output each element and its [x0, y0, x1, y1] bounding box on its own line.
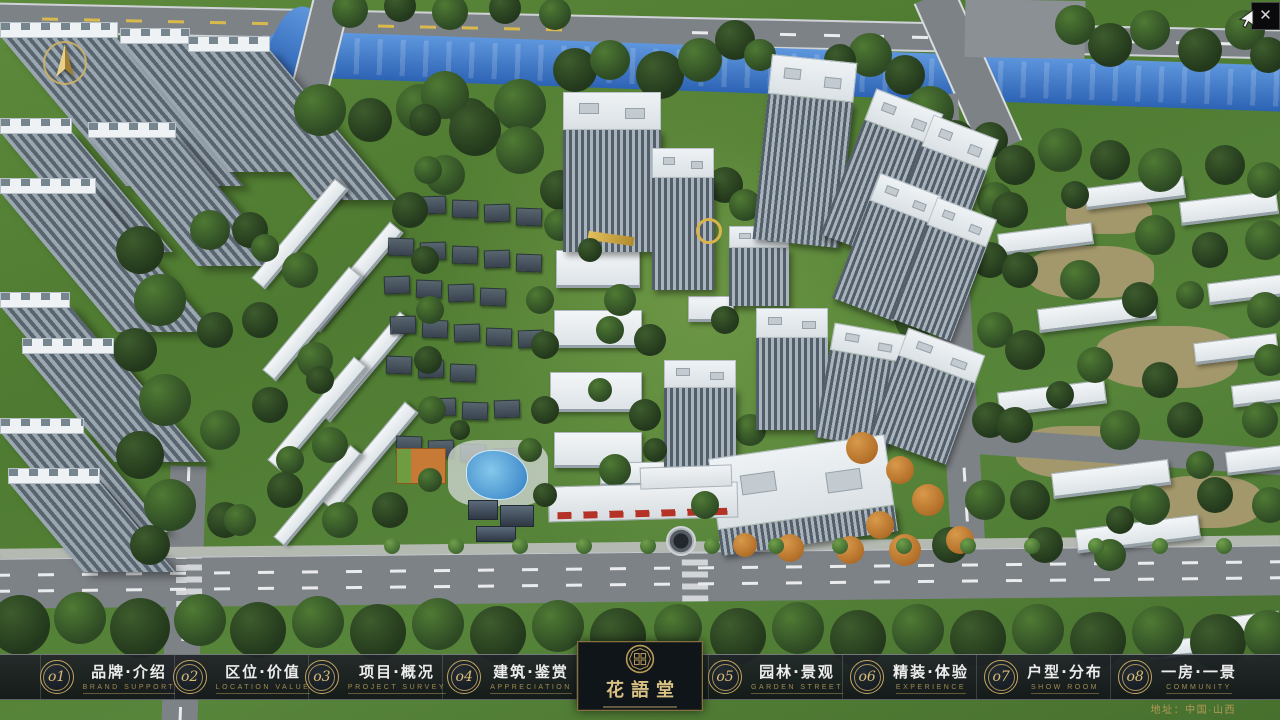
address-label: 地址：中国·山西 — [1151, 701, 1236, 716]
nav-item-title: 区位·价值 — [225, 661, 301, 682]
nav-item-title: 户型·分布 — [1027, 661, 1103, 682]
nav-item-architecture[interactable]: o4 建筑·鉴赏 APPRECIATION — [442, 655, 576, 699]
brand-logo-panel[interactable]: 花語堂 — [577, 641, 703, 711]
nav-item-subtitle: LOCATION VALUE — [216, 684, 311, 694]
nav-item-title: 项目·概况 — [359, 661, 435, 682]
nav-item-title: 一房·一景 — [1161, 661, 1237, 682]
nav-number-badge: o7 — [984, 660, 1018, 694]
brand-subtext-line — [603, 706, 677, 708]
nav-item-community[interactable]: o8 一房·一景 COMMUNITY — [1110, 655, 1244, 699]
nav-number-badge: o2 — [173, 660, 207, 694]
nav-number-badge: o6 — [850, 660, 884, 694]
nav-item-garden[interactable]: o5 园林·景观 GARDEN STREET — [708, 655, 842, 699]
nav-item-subtitle: EXPERIENCE — [896, 684, 966, 694]
nav-spacer — [1244, 655, 1280, 699]
nav-item-subtitle: COMMUNITY — [1166, 684, 1232, 694]
nav-item-floorplan[interactable]: o7 户型·分布 SHOW ROOM — [976, 655, 1110, 699]
brand-seal-icon — [625, 644, 655, 674]
nav-item-title: 品牌·介绍 — [91, 661, 167, 682]
nav-item-brand[interactable]: o1 品牌·介绍 BRAND SUPPORT — [40, 655, 174, 699]
nav-item-location[interactable]: o2 区位·价值 LOCATION VALUE — [174, 655, 308, 699]
nav-number-badge: o4 — [447, 660, 481, 694]
nav-number-badge: o5 — [708, 660, 742, 694]
nav-item-title: 建筑·鉴赏 — [493, 661, 569, 682]
nav-number-badge: o1 — [40, 660, 74, 694]
nav-item-subtitle: BRAND SUPPORT — [83, 684, 176, 694]
nav-number-badge: o8 — [1118, 660, 1152, 694]
brand-title: 花語堂 — [599, 676, 681, 702]
sales-presentation-window: ✕ o1 品牌·介绍 BRAND SUPPORT o2 区位·价值 LOCATI… — [0, 0, 1280, 720]
nav-item-interior[interactable]: o6 精装·体验 EXPERIENCE — [842, 655, 976, 699]
north-compass-icon — [43, 41, 87, 85]
nav-item-subtitle: GARDEN STREET — [751, 684, 843, 694]
nav-item-subtitle: APPRECIATION — [490, 684, 572, 694]
nav-item-title: 精装·体验 — [893, 661, 969, 682]
nav-item-project[interactable]: o3 项目·概况 PROJECT SURVEY — [308, 655, 442, 699]
close-icon[interactable]: ✕ — [1251, 2, 1280, 30]
mouse-cursor — [1236, 9, 1254, 29]
nav-item-subtitle: PROJECT SURVEY — [348, 684, 446, 694]
nav-item-subtitle: SHOW ROOM — [1031, 684, 1099, 694]
nav-item-title: 园林·景观 — [759, 661, 835, 682]
nav-spacer — [0, 655, 40, 699]
nav-number-badge: o3 — [305, 660, 339, 694]
